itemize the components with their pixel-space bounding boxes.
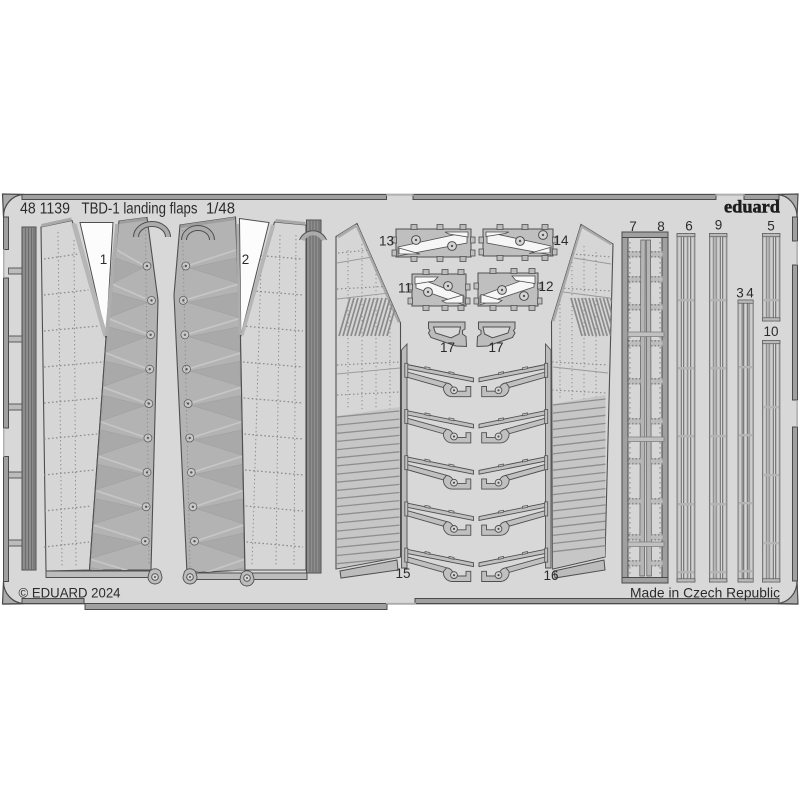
svg-text:2: 2: [242, 252, 250, 267]
svg-text:Made in Czech Republic: Made in Czech Republic: [630, 585, 780, 601]
svg-text:11: 11: [398, 281, 412, 296]
svg-text:12: 12: [538, 279, 553, 294]
svg-text:6: 6: [685, 219, 693, 234]
svg-text:TBD-1 landing flaps: TBD-1 landing flaps: [82, 201, 198, 218]
svg-text:1: 1: [100, 252, 108, 267]
svg-text:eduard: eduard: [724, 197, 780, 217]
svg-text:17: 17: [440, 340, 455, 355]
svg-text:13: 13: [379, 234, 394, 249]
svg-text:14: 14: [553, 233, 569, 248]
svg-text:10: 10: [763, 324, 778, 339]
svg-text:3: 3: [736, 286, 744, 301]
svg-text:17: 17: [488, 340, 503, 355]
svg-text:5: 5: [767, 219, 775, 234]
svg-text:1/48: 1/48: [206, 201, 235, 218]
svg-text:© EDUARD 2024: © EDUARD 2024: [19, 585, 121, 601]
svg-text:4: 4: [746, 286, 754, 301]
svg-text:16: 16: [543, 568, 558, 583]
svg-text:8: 8: [657, 219, 665, 234]
svg-text:48 1139: 48 1139: [20, 201, 70, 218]
svg-text:9: 9: [715, 218, 723, 233]
svg-text:7: 7: [629, 219, 637, 234]
